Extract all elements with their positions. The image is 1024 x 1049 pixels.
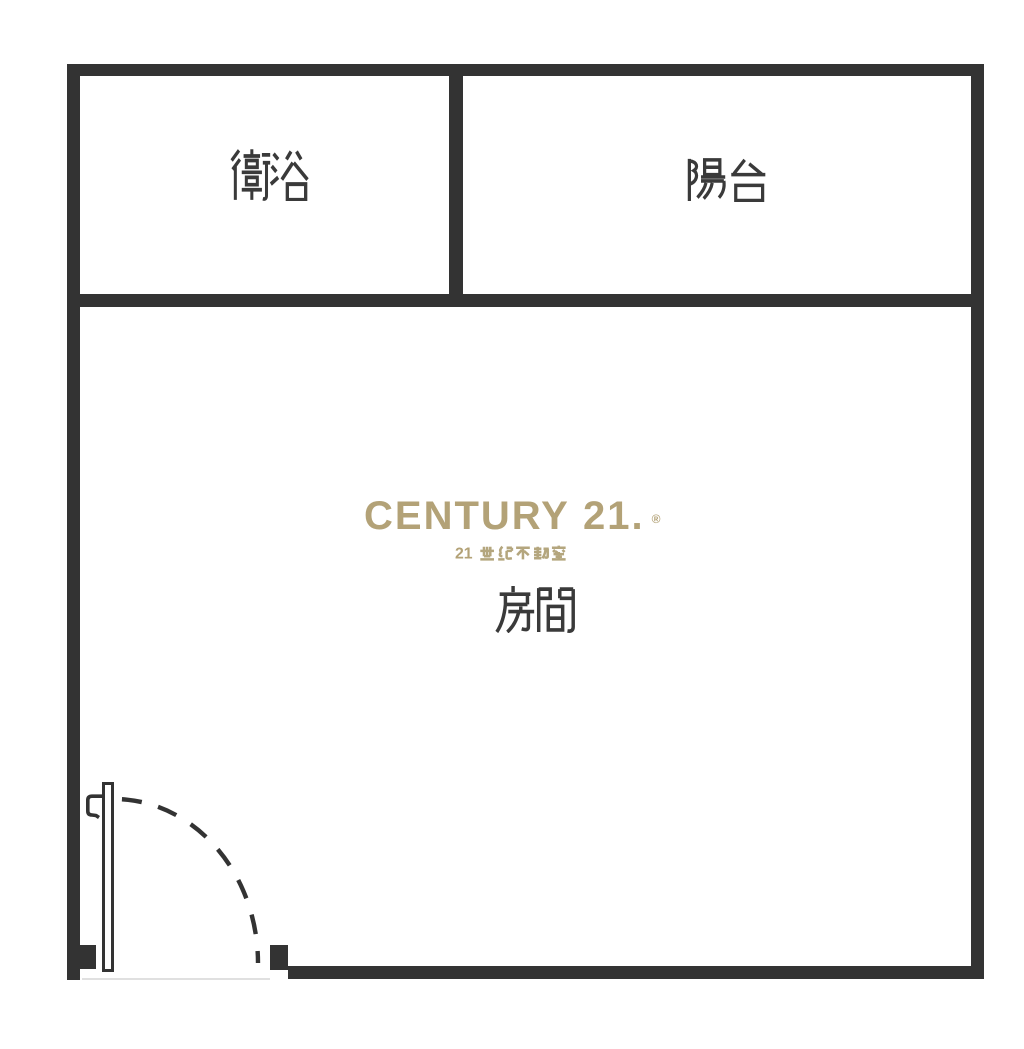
svg-text:21: 21 <box>455 545 473 561</box>
